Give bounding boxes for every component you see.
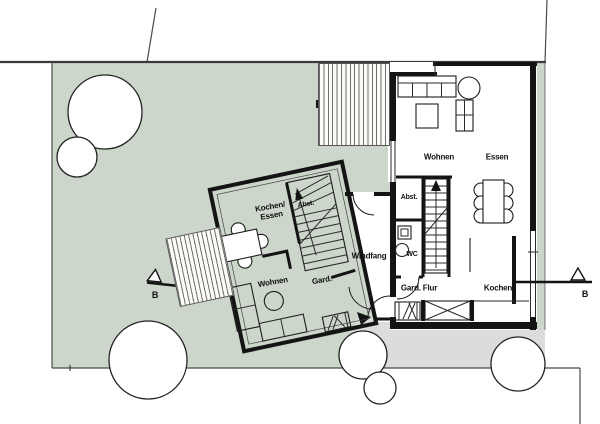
room-label-wc: WC [406,251,417,259]
tree-icon [491,337,545,391]
tree-icon [57,137,97,177]
tree-icon [109,321,187,399]
room-label-windfang: Windfang [352,253,387,262]
tree-icon [364,372,396,404]
terrace-top [318,63,390,146]
room-label-gard-flur: Gard. Flur [401,285,437,294]
dining-table-icon [483,180,504,223]
room-label-kochen-right: Kochen [484,285,512,294]
floor-plan: Kochen/ Essen Abst. Wohnen Gard. Windfan… [0,0,600,424]
plan-drawing [0,0,600,424]
window-right [528,231,538,317]
room-label-abst-right: Abst. [401,194,418,202]
dining-set-right [474,180,513,223]
room-label-wohnen-right: Wohnen [424,154,454,163]
section-label-b-left: B [152,290,158,300]
section-arrow-icon [571,268,585,280]
section-label-b-right: B [582,289,588,299]
room-label-essen-right: Essen [486,154,509,163]
